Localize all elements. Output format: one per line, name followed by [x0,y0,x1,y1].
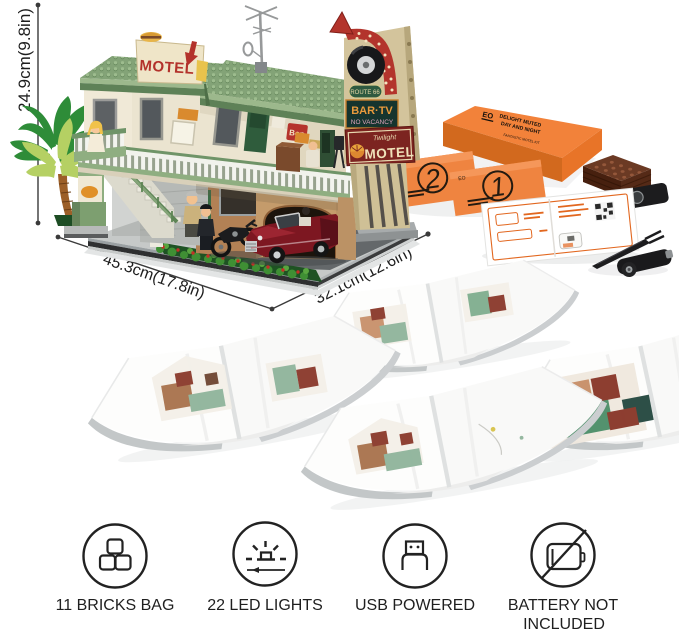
svg-text:NO VACANCY: NO VACANCY [351,119,394,126]
svg-text:BATTERY NOT: BATTERY NOT [508,597,618,614]
svg-text:EO: EO [458,175,466,182]
svg-text:BAR·TV: BAR·TV [351,105,393,117]
svg-text:22 LED LIGHTS: 22 LED LIGHTS [207,597,323,614]
svg-text:24.9cm(9.8in): 24.9cm(9.8in) [15,8,34,112]
svg-text:ROUTE 66: ROUTE 66 [350,90,380,96]
svg-text:INCLUDED: INCLUDED [523,616,605,633]
svg-text:USB POWERED: USB POWERED [355,597,475,614]
svg-text:Twilight: Twilight [373,134,398,142]
svg-text:11 BRICKS BAG: 11 BRICKS BAG [56,597,175,614]
svg-text:MOTEL: MOTEL [364,144,414,162]
